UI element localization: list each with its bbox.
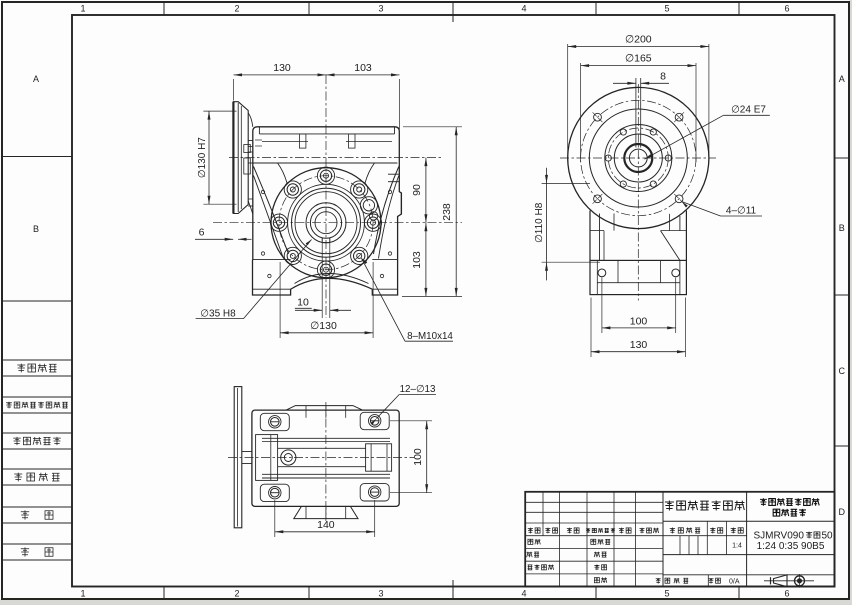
svg-text:6: 6 — [784, 4, 789, 14]
svg-text:∅165: ∅165 — [625, 53, 652, 65]
svg-text:0/A: 0/A — [729, 578, 740, 585]
svg-text:B: B — [839, 223, 845, 233]
svg-text:3: 3 — [378, 4, 383, 14]
svg-text:1:24 0:35 90B5: 1:24 0:35 90B5 — [757, 541, 825, 552]
svg-text:1:4: 1:4 — [732, 543, 742, 550]
svg-text:4: 4 — [521, 589, 526, 599]
svg-text:∅130: ∅130 — [310, 320, 337, 332]
svg-text:100: 100 — [412, 448, 424, 466]
svg-text:6: 6 — [784, 589, 789, 599]
svg-text:90: 90 — [411, 184, 423, 196]
svg-text:∅200: ∅200 — [625, 34, 652, 46]
svg-text:B: B — [33, 224, 39, 234]
svg-text:∅130 H7: ∅130 H7 — [197, 137, 208, 178]
svg-text:103: 103 — [354, 62, 372, 74]
svg-text:SJMRV090: SJMRV090 — [754, 531, 805, 542]
svg-text:1: 1 — [80, 589, 85, 599]
svg-text:130: 130 — [273, 62, 291, 74]
svg-text:2: 2 — [234, 4, 239, 14]
svg-text:D: D — [839, 507, 846, 517]
svg-text:6: 6 — [199, 226, 205, 238]
svg-text:3: 3 — [378, 589, 383, 599]
svg-text:10: 10 — [297, 296, 309, 308]
svg-text:A: A — [33, 74, 39, 84]
svg-text:2: 2 — [234, 589, 239, 599]
svg-text:∅24 E7: ∅24 E7 — [731, 104, 766, 115]
svg-text:140: 140 — [317, 519, 335, 531]
svg-text:50: 50 — [822, 531, 834, 542]
svg-text:100: 100 — [630, 315, 648, 327]
svg-text:1: 1 — [80, 4, 85, 14]
svg-text:4: 4 — [521, 4, 526, 14]
svg-text:5: 5 — [664, 4, 669, 14]
svg-text:8: 8 — [660, 70, 666, 82]
svg-text:∅110 H8: ∅110 H8 — [534, 202, 545, 243]
svg-text:103: 103 — [411, 251, 423, 269]
svg-text:238: 238 — [441, 203, 453, 221]
svg-text:12–∅13: 12–∅13 — [400, 384, 436, 395]
svg-text:5: 5 — [664, 589, 669, 599]
svg-text:A: A — [839, 74, 845, 84]
svg-text:8–M10x14: 8–M10x14 — [407, 331, 453, 342]
svg-text:4–∅11: 4–∅11 — [726, 206, 757, 217]
svg-text:∅35 H8: ∅35 H8 — [200, 309, 236, 320]
svg-text:C: C — [839, 366, 846, 376]
svg-text:130: 130 — [630, 339, 648, 351]
